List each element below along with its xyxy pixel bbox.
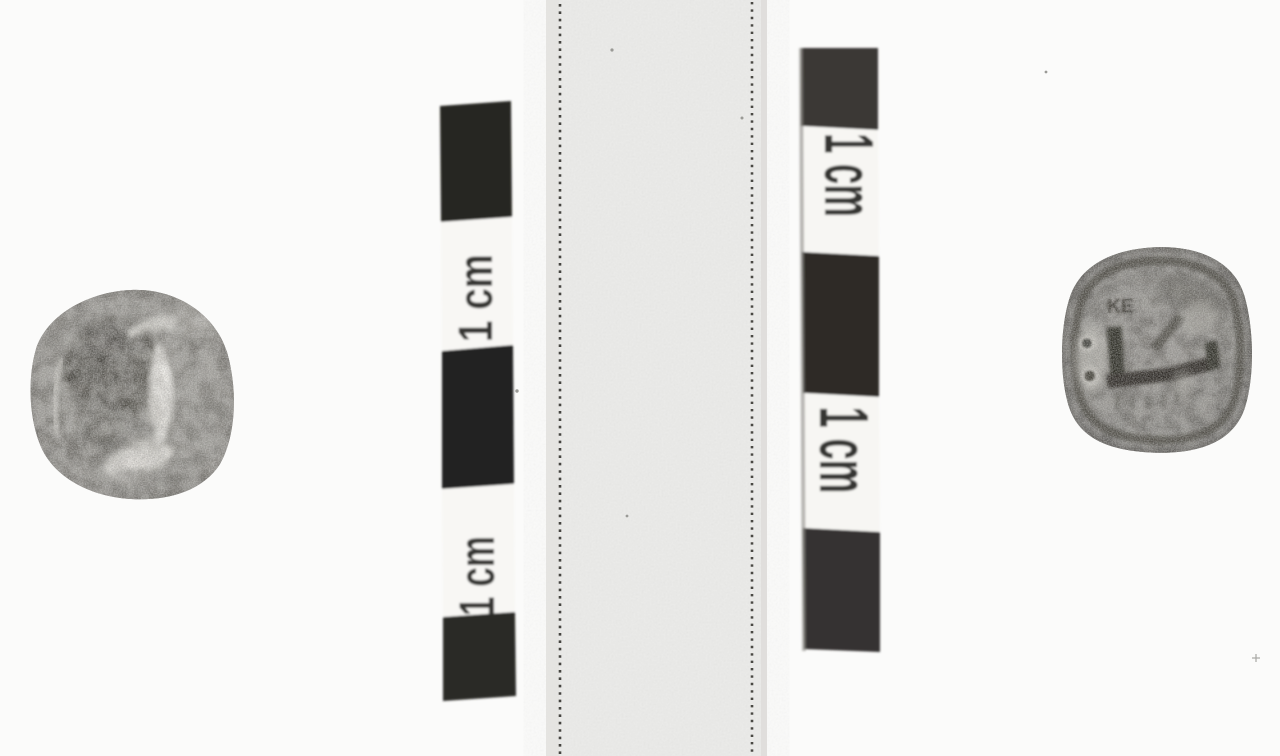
svg-text:1 cm: 1 cm — [805, 407, 883, 494]
svg-text:1 cm: 1 cm — [450, 254, 503, 342]
svg-text:1 cm: 1 cm — [449, 536, 505, 616]
svg-text:1 cm: 1 cm — [810, 133, 888, 217]
